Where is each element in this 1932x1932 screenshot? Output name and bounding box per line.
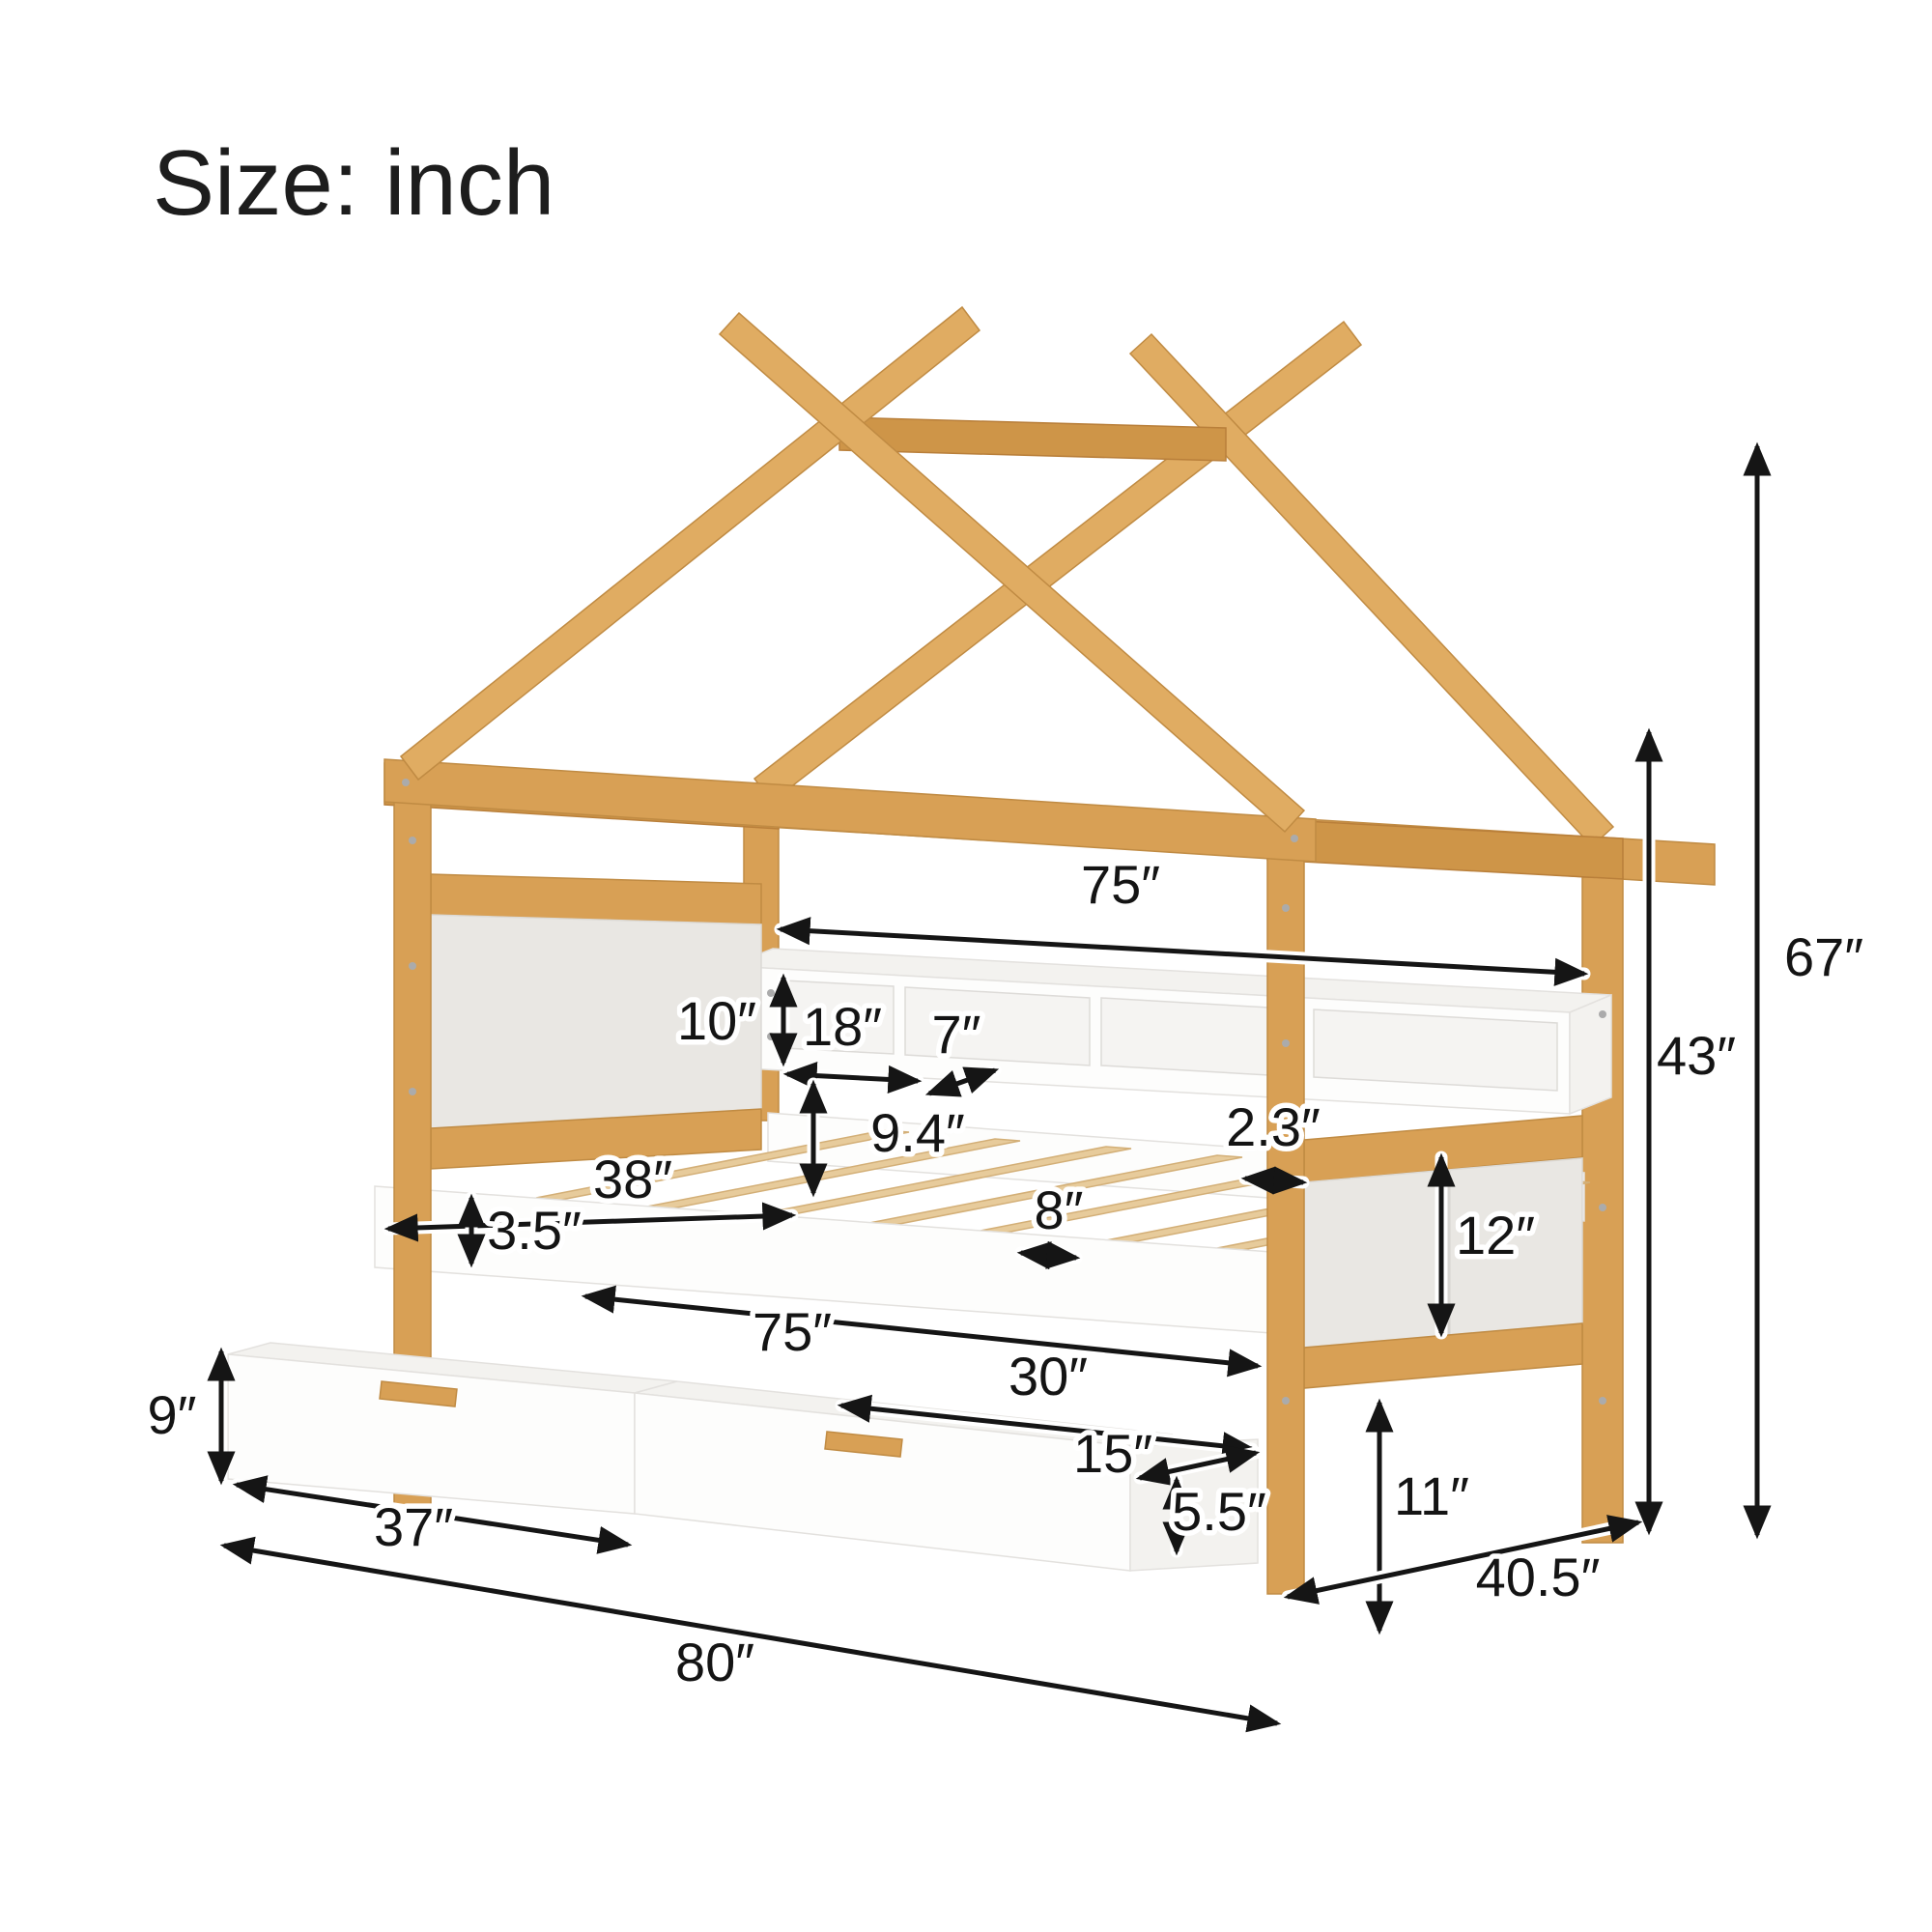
drawer-front-width-label: 37″ (374, 1496, 453, 1557)
dim-overall-height: 67″ (1757, 446, 1863, 1535)
foot-tie-beam (1267, 819, 1623, 879)
dim-overall-length: 80″ (224, 1546, 1277, 1723)
screw (1282, 1039, 1290, 1047)
drawer-depth-label: 15″ (1073, 1423, 1152, 1484)
cubby-width-label: 18″ (803, 996, 882, 1057)
screw (767, 1033, 775, 1040)
rail-height-label: 3.5″ (487, 1200, 582, 1261)
shelf-to-platform-label: 9.4″ (870, 1102, 965, 1163)
screw (1599, 1397, 1606, 1405)
page-title: Size: inch (153, 131, 554, 235)
screw (1599, 1204, 1606, 1211)
shelf-height-label: 10″ (677, 990, 756, 1051)
dimension-diagram: Size: inch (0, 0, 1932, 1932)
dim-overall-width: 40.5″ (1288, 1522, 1638, 1607)
dim-under-bed-clearance: 11″ (1379, 1403, 1469, 1631)
front-eave-beam (384, 759, 1316, 862)
right-drawer-front (635, 1393, 1130, 1571)
post-thickness-label: 2.3″ (1226, 1096, 1321, 1157)
bed-dimension-illustration: Size: inch (0, 0, 1932, 1932)
slat-spacing-label: 8″ (1035, 1179, 1084, 1240)
overall-height-label: 67″ (1784, 926, 1863, 987)
rear-rafter-right (1130, 334, 1613, 846)
screw (409, 1088, 416, 1095)
bed-length-label: 75″ (753, 1301, 832, 1362)
screw (1282, 1397, 1290, 1405)
screw (409, 962, 416, 970)
shelf-depth-label: 7″ (932, 1004, 981, 1065)
screw (409, 837, 416, 844)
rear-rafter-left (754, 322, 1361, 802)
frame-height-label: 43″ (1657, 1025, 1736, 1086)
shelf-length-label: 75″ (1081, 854, 1160, 915)
footboard-panel-height-label: 12″ (1456, 1205, 1535, 1265)
screw (402, 779, 410, 786)
overall-length-label: 80″ (675, 1632, 754, 1692)
overall-width-label: 40.5″ (1476, 1547, 1601, 1607)
screw (767, 989, 775, 997)
dim-drawer-inner-height: 5.5″ (1172, 1480, 1266, 1551)
screw (1282, 904, 1290, 912)
foot-front-post (1267, 858, 1304, 1594)
screw (1599, 1010, 1606, 1018)
drawer-top-length-label: 30″ (1009, 1346, 1088, 1406)
dim-rail-height: 3.5″ (471, 1198, 582, 1264)
drawer-height-label: 9″ (148, 1384, 197, 1445)
dim-drawer-height: 9″ (148, 1351, 221, 1481)
bed-platform (375, 874, 1590, 1388)
screw (1291, 835, 1298, 842)
inner-width-label: 38″ (593, 1149, 672, 1209)
drawer-inner-height-label: 5.5″ (1172, 1481, 1266, 1542)
bookshelf-cubby (1314, 1009, 1557, 1091)
under-bed-clearance-label: 11″ (1394, 1465, 1469, 1526)
